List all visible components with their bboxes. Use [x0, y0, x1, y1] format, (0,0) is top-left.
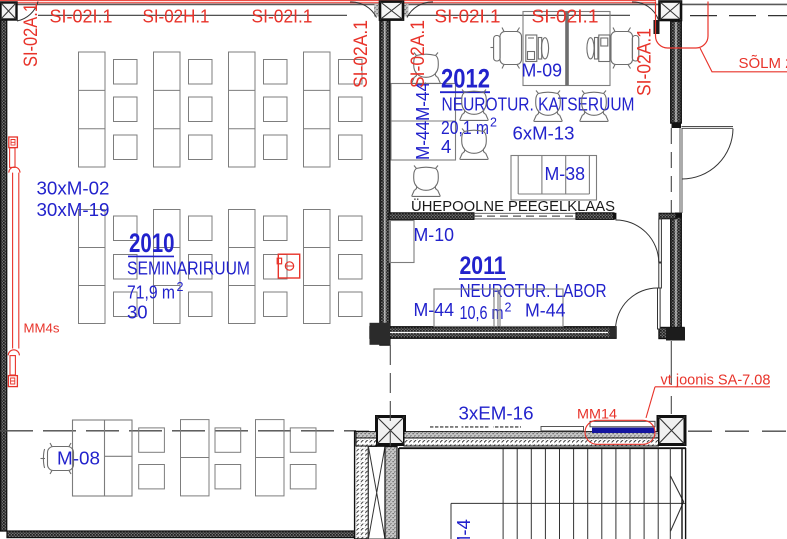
svg-text:SI-02I.1: SI-02I.1: [50, 5, 113, 26]
svg-text:MM4s: MM4s: [24, 321, 61, 336]
svg-text:SI-02A.1: SI-02A.1: [408, 20, 429, 88]
svg-text:ÜHEPOOLNE PEEGELKLAAS: ÜHEPOOLNE PEEGELKLAAS: [411, 197, 615, 215]
svg-text:SI-02I.1: SI-02I.1: [435, 5, 501, 26]
svg-text:6xM-13: 6xM-13: [513, 123, 575, 144]
svg-text:2011: 2011: [460, 252, 506, 280]
svg-text:SI-02A.1: SI-02A.1: [635, 28, 656, 96]
svg-text:SI-02I.1: SI-02I.1: [532, 5, 599, 26]
svg-text:M-44: M-44: [414, 299, 455, 320]
svg-text:SI-02H.1: SI-02H.1: [143, 5, 210, 26]
svg-text:M-4: M-4: [453, 519, 474, 539]
svg-text:vt joonis SA-7.08: vt joonis SA-7.08: [661, 372, 771, 389]
svg-text:SÕLM 2: SÕLM 2: [739, 55, 787, 72]
svg-text:2: 2: [505, 301, 512, 315]
svg-text:SI-02A.1: SI-02A.1: [21, 3, 42, 67]
svg-text:2010: 2010: [129, 228, 175, 258]
svg-text:4: 4: [441, 136, 451, 157]
svg-text:M-44: M-44: [525, 300, 566, 321]
svg-text:2: 2: [177, 280, 184, 294]
svg-text:10,6 m: 10,6 m: [460, 302, 504, 323]
svg-text:M-10: M-10: [414, 224, 455, 245]
svg-text:NEUROTUR. LABOR: NEUROTUR. LABOR: [460, 280, 607, 301]
svg-text:2: 2: [490, 116, 497, 130]
svg-text:M-08: M-08: [57, 448, 100, 469]
svg-text:3xEM-16: 3xEM-16: [459, 403, 534, 424]
svg-text:SI-02A.1: SI-02A.1: [351, 20, 372, 88]
svg-text:30xM-02: 30xM-02: [37, 178, 110, 199]
svg-text:M-38: M-38: [545, 163, 586, 184]
svg-text:MM14: MM14: [577, 406, 617, 422]
svg-text:SI-02I.1: SI-02I.1: [252, 5, 313, 26]
svg-text:30xM-19: 30xM-19: [37, 199, 110, 220]
svg-text:M-09: M-09: [522, 60, 563, 81]
svg-text:30: 30: [127, 302, 148, 323]
svg-text:71,9 m: 71,9 m: [127, 281, 175, 302]
svg-text:SEMINARIRUUM: SEMINARIRUUM: [127, 257, 250, 278]
svg-text:M-44M-44: M-44M-44: [412, 82, 433, 160]
svg-text:2012: 2012: [441, 63, 490, 93]
